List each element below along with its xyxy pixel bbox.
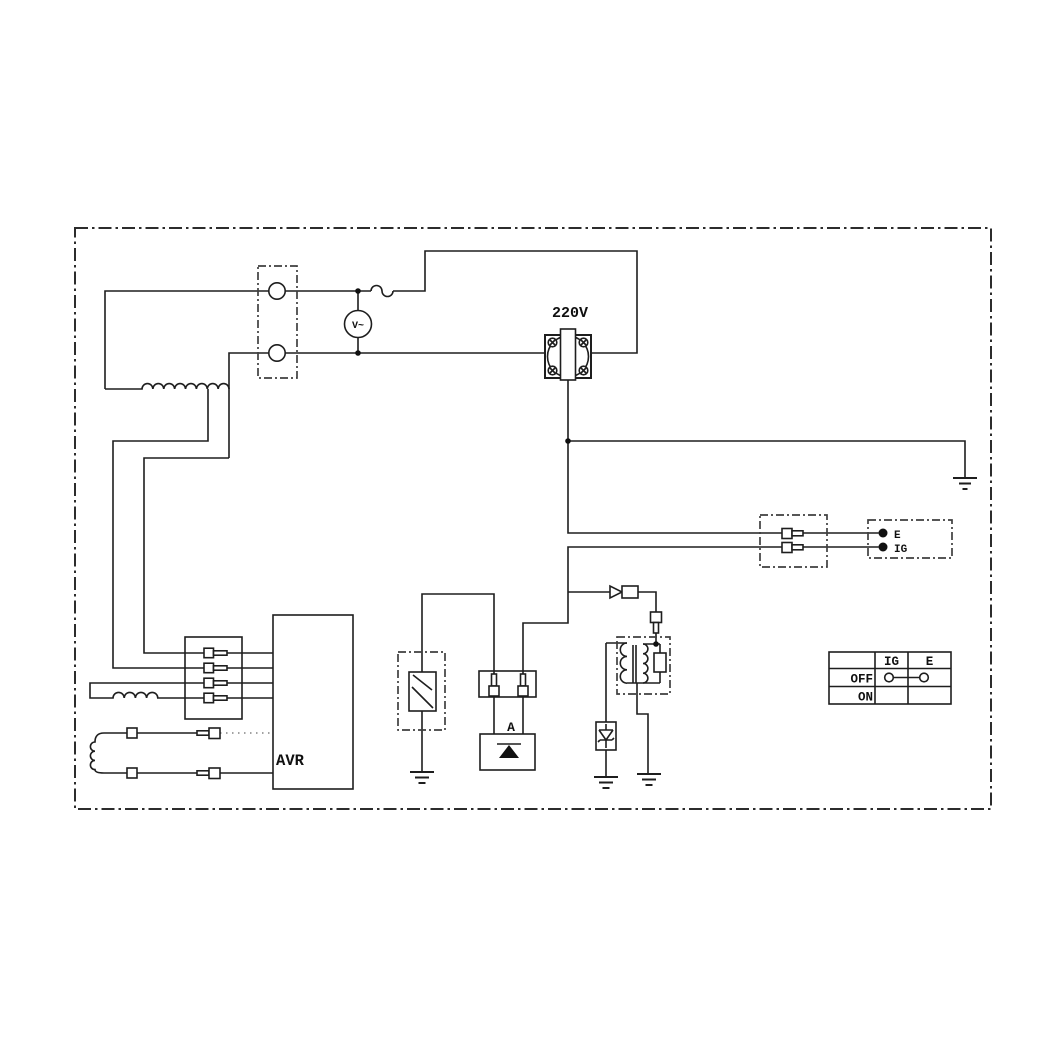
avr-label: AVR [276, 752, 305, 770]
ground-symbol-ignition [637, 774, 661, 785]
outlet-voltage-label: 220V [552, 305, 588, 322]
stop-switch-connector [760, 515, 827, 567]
ignition-coil [617, 637, 670, 694]
terminal-dot-e [879, 529, 888, 538]
table-col-ig: IG [884, 655, 899, 669]
ground-symbol-main [953, 478, 977, 489]
diagram-border [75, 228, 991, 809]
rectifier-label: A [507, 720, 515, 735]
outlet-slot [561, 329, 576, 380]
fuse [371, 286, 393, 297]
stator-winding [105, 384, 229, 389]
avr-unit: AVR [273, 615, 353, 789]
schematic-page: V~ 220V E IG IG E OFF ON [0, 0, 1041, 1041]
terminal-ring-top [269, 283, 285, 299]
field-winding-connectors [127, 728, 220, 779]
coil-resistor [654, 653, 666, 672]
rectifier-connector [479, 671, 536, 697]
table-col-e: E [926, 655, 934, 669]
rectifier-unit: A [480, 720, 535, 770]
ground-symbol-cdi [594, 777, 618, 788]
terminal-dot-ig [879, 543, 888, 552]
outlet-220v: 220V [545, 305, 591, 380]
wiring-diagram: V~ 220V E IG IG E OFF ON [0, 0, 1041, 1041]
switch-position-table: IG E OFF ON [829, 652, 951, 705]
voltmeter-label: V~ [352, 321, 364, 332]
voltmeter: V~ [345, 311, 372, 338]
table-row-off: OFF [850, 673, 873, 687]
ignition-diode-resistor [610, 586, 638, 598]
stop-switch-terminals: E IG [868, 520, 952, 558]
terminal-ring-bottom [269, 345, 285, 361]
terminal-e-label: E [894, 530, 901, 542]
avr-connector-pins [204, 648, 227, 703]
spark-plug-connector [651, 612, 662, 633]
cdi-unit [596, 722, 616, 750]
field-winding [90, 733, 104, 773]
output-terminal-block [258, 266, 297, 378]
diode-icon [610, 586, 622, 598]
sensing-winding [90, 683, 204, 698]
terminal-ig-label: IG [894, 544, 908, 556]
avr-connector [185, 637, 242, 719]
ground-symbol-condenser [410, 772, 434, 783]
table-row-on: ON [858, 691, 873, 705]
